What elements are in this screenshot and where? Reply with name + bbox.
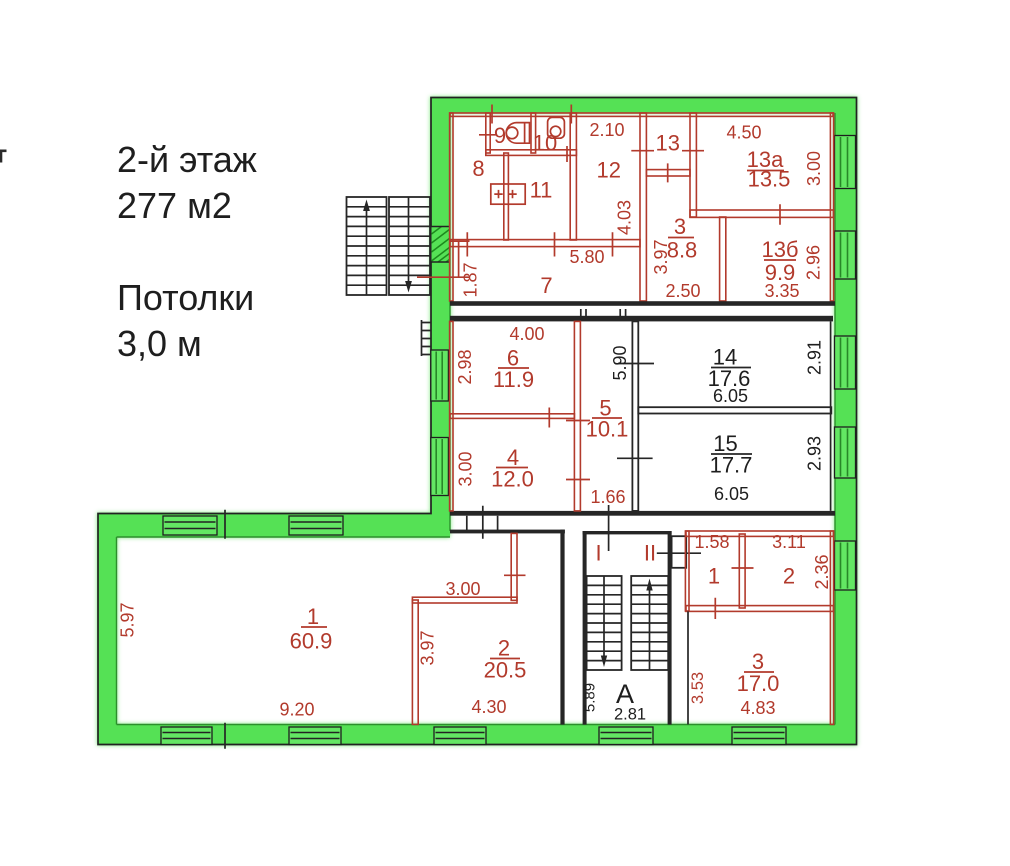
svg-text:3.00: 3.00	[804, 151, 824, 186]
svg-text:20.5: 20.5	[484, 658, 527, 683]
svg-text:3,0 м: 3,0 м	[117, 323, 202, 364]
svg-text:3.97: 3.97	[651, 239, 671, 274]
svg-text:Потолки: Потолки	[117, 277, 254, 318]
svg-text:5.80: 5.80	[569, 247, 604, 267]
svg-text:13б: 13б	[761, 237, 798, 262]
svg-text:8.8: 8.8	[667, 238, 698, 263]
svg-text:I: I	[595, 541, 601, 566]
svg-text:9.20: 9.20	[279, 700, 314, 720]
svg-text:А: А	[616, 679, 634, 709]
svg-text:2.36: 2.36	[812, 554, 832, 589]
svg-text:12.0: 12.0	[491, 467, 534, 492]
svg-text:3: 3	[674, 214, 686, 239]
svg-text:2.10: 2.10	[589, 120, 624, 140]
svg-text:6.05: 6.05	[713, 386, 748, 406]
svg-text:5.90: 5.90	[610, 345, 630, 380]
svg-text:1.58: 1.58	[694, 532, 729, 552]
svg-text:7: 7	[540, 273, 552, 298]
svg-text:11: 11	[530, 178, 553, 203]
svg-text:3.00: 3.00	[455, 451, 475, 486]
svg-text:60.9: 60.9	[290, 629, 333, 654]
svg-text:4.03: 4.03	[614, 200, 634, 235]
svg-text:12: 12	[596, 158, 620, 183]
svg-text:2.96: 2.96	[803, 245, 823, 280]
svg-text:10: 10	[533, 131, 557, 156]
svg-text:2.50: 2.50	[665, 281, 700, 301]
svg-text:2-й этаж: 2-й этаж	[117, 139, 257, 180]
svg-text:3.97: 3.97	[417, 630, 437, 665]
svg-text:3.00: 3.00	[445, 579, 480, 599]
svg-text:4.50: 4.50	[726, 123, 761, 143]
svg-text:3.35: 3.35	[764, 281, 799, 301]
svg-text:2.93: 2.93	[804, 436, 824, 471]
svg-text:2: 2	[783, 564, 795, 589]
svg-text:2.81: 2.81	[614, 706, 646, 724]
svg-text:4.00: 4.00	[509, 324, 544, 344]
svg-text:5.89: 5.89	[581, 683, 598, 712]
svg-text:3.11: 3.11	[772, 532, 806, 552]
svg-text:17.7: 17.7	[710, 453, 753, 478]
svg-text:8: 8	[472, 156, 484, 181]
svg-text:1.87: 1.87	[460, 262, 480, 297]
svg-text:13.5: 13.5	[748, 167, 791, 192]
svg-text:13: 13	[656, 131, 680, 156]
svg-text:II: II	[644, 541, 656, 566]
svg-text:1: 1	[307, 604, 319, 629]
svg-text:10.1: 10.1	[586, 417, 629, 442]
svg-text:11.9: 11.9	[493, 367, 534, 392]
svg-text:4.30: 4.30	[471, 697, 506, 717]
svg-text:1.66: 1.66	[590, 487, 625, 507]
svg-text:9: 9	[494, 123, 506, 148]
svg-text:1: 1	[708, 564, 720, 589]
svg-text:4.83: 4.83	[740, 698, 775, 718]
svg-text:3.53: 3.53	[689, 672, 707, 704]
svg-text:6.05: 6.05	[714, 484, 749, 504]
svg-text:5.97: 5.97	[117, 602, 137, 637]
svg-text:2.91: 2.91	[804, 340, 824, 375]
svg-text:2.98: 2.98	[455, 349, 475, 384]
svg-text:17.0: 17.0	[737, 671, 780, 696]
svg-text:277 м2: 277 м2	[117, 185, 232, 226]
